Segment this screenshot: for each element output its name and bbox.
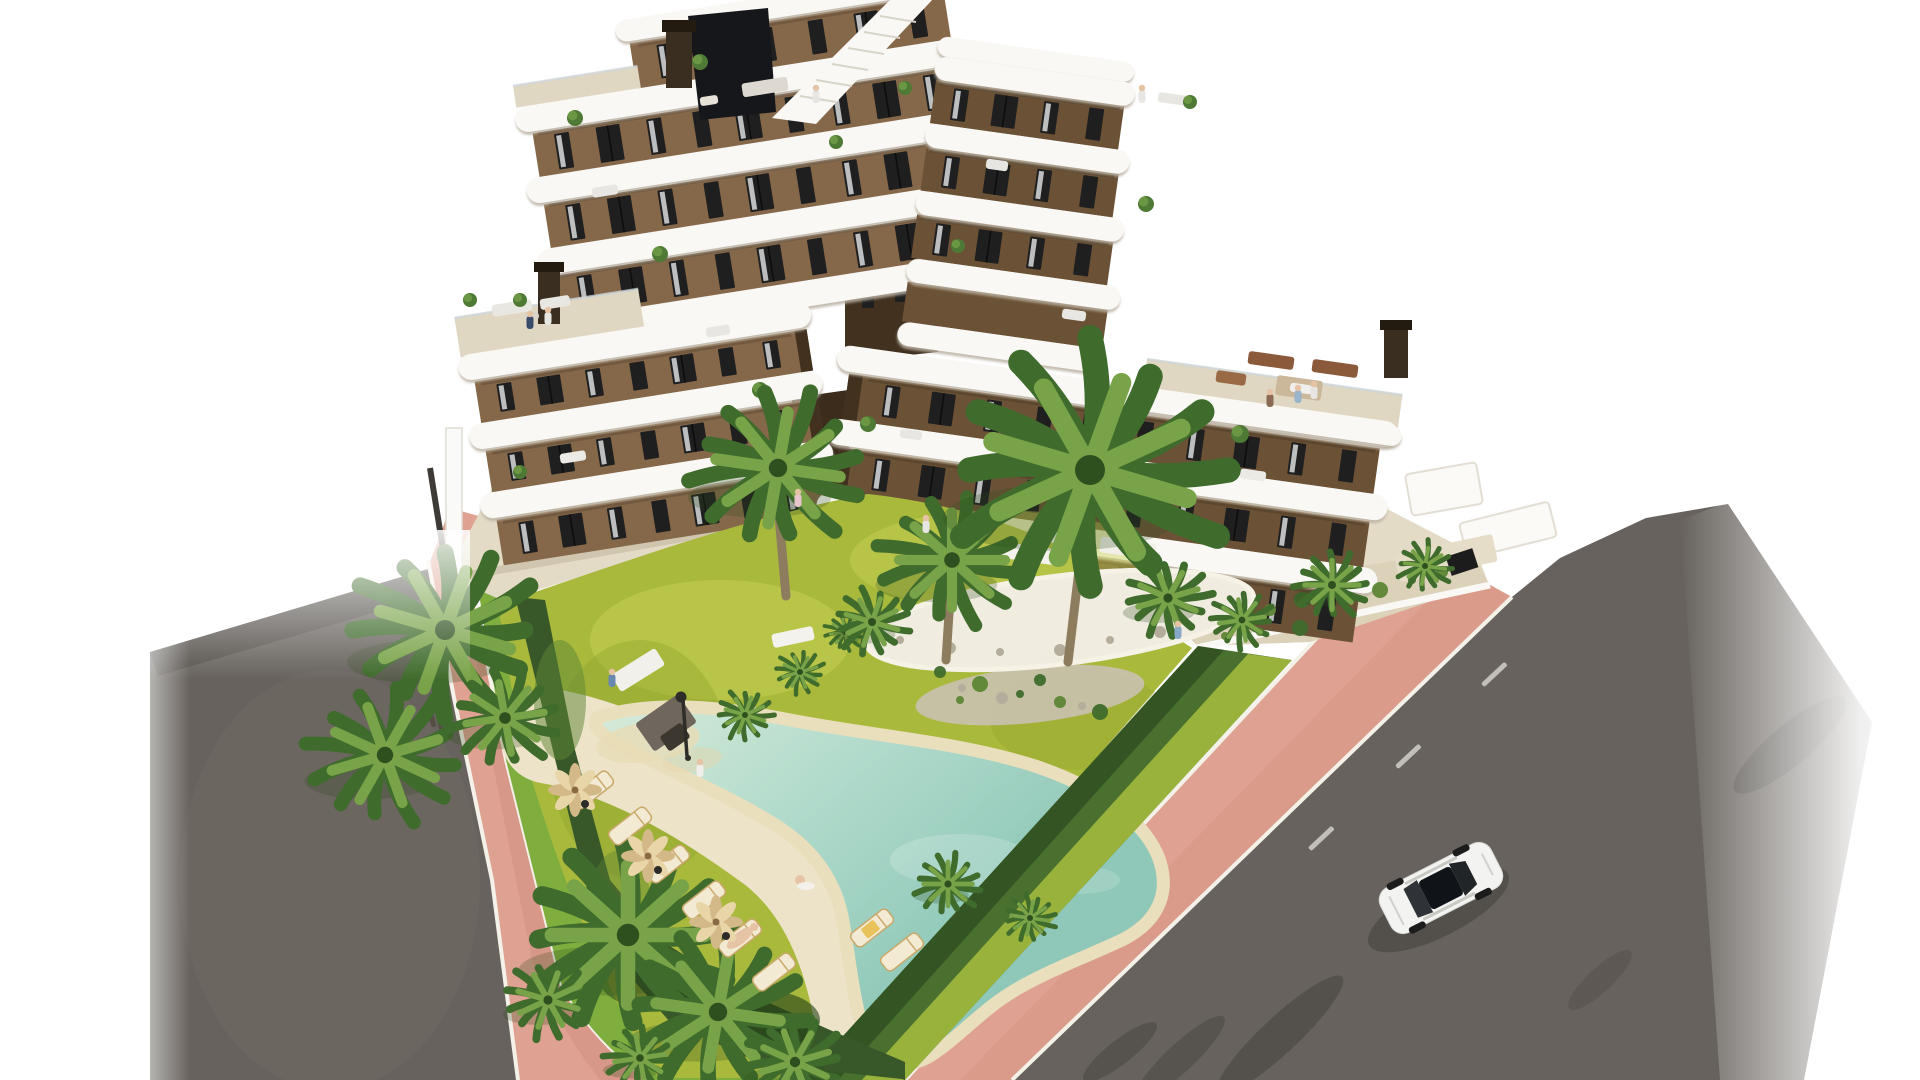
person (1139, 85, 1146, 103)
rock (1078, 702, 1086, 710)
person (1267, 389, 1274, 407)
rock (996, 648, 1004, 656)
architectural-rendering (0, 0, 1920, 1080)
rock (958, 684, 966, 692)
shrub (1054, 696, 1066, 708)
person (1175, 621, 1182, 639)
person (545, 307, 552, 325)
shrub (972, 676, 988, 692)
person (795, 489, 802, 507)
shrub (1034, 674, 1046, 686)
person (527, 311, 534, 329)
parasol (621, 829, 675, 883)
shrub (1292, 620, 1308, 636)
shrub (934, 666, 946, 678)
shrub (1092, 704, 1108, 720)
rock (1054, 644, 1066, 656)
person (813, 85, 820, 103)
terrace-furniture (1247, 351, 1294, 370)
person (923, 515, 930, 533)
person (1311, 381, 1318, 399)
person (697, 759, 704, 777)
rock (996, 692, 1008, 704)
parasol (689, 895, 743, 949)
rock (1106, 636, 1114, 644)
person (609, 669, 616, 687)
parasol (548, 763, 602, 817)
terrace-furniture (1311, 359, 1358, 378)
person (1295, 385, 1302, 403)
shrub (1016, 690, 1024, 698)
shrub (1372, 582, 1388, 598)
shrub (956, 696, 964, 704)
